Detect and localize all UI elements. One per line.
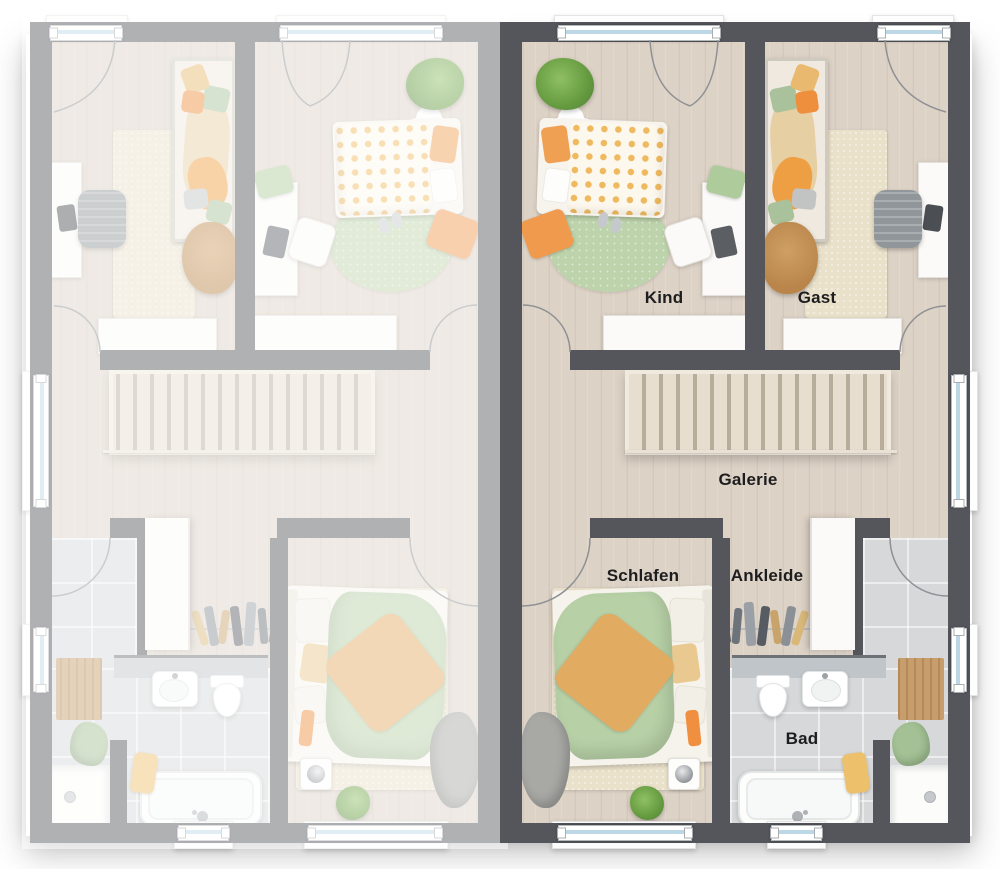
wall-ankleide-bad [137, 538, 147, 672]
door-arc-schlafen [410, 538, 478, 606]
wall-shower [110, 740, 127, 823]
towel-green [892, 722, 930, 766]
pillow-gray [791, 188, 817, 210]
label-schlafen: Schlafen [607, 566, 679, 586]
door-arc-gast-galerie [54, 306, 100, 352]
door-arcs [30, 22, 500, 843]
wall-party [500, 22, 522, 843]
pillow-white [428, 167, 458, 204]
sill-right-bad [22, 624, 40, 696]
garment-5 [770, 610, 783, 645]
toilet-tank [210, 675, 244, 688]
towel-green [70, 722, 108, 766]
window-bad-side [951, 628, 967, 692]
sideboard-gast [98, 318, 217, 354]
pillow-orange-accent [298, 709, 315, 746]
shower-drain [924, 791, 936, 803]
plant-schlafen-icon [336, 786, 370, 820]
toilet [212, 675, 244, 717]
bed-base [280, 585, 448, 767]
bath-counter [114, 655, 268, 678]
bed-base [332, 118, 463, 218]
sill-right-galerie [22, 371, 40, 511]
pillow-green [201, 85, 231, 114]
wall-bottom [30, 823, 500, 843]
chair-kind [286, 215, 338, 269]
wall-galerie-schlafen [590, 518, 723, 538]
sill-bottom-bad [174, 821, 233, 849]
pillow-orange [181, 90, 206, 115]
rug-gast [113, 130, 195, 318]
pillow-gray [183, 188, 209, 210]
desk-gast [918, 162, 950, 278]
wood-floor [52, 42, 478, 823]
window-bad-bottom [178, 825, 229, 841]
sink [152, 671, 198, 707]
desk-kind [250, 182, 298, 296]
window-kind [280, 25, 442, 41]
garment-7 [191, 610, 210, 647]
bed-schlafen [552, 585, 720, 767]
desk-gast [50, 162, 82, 278]
bathtub [140, 771, 262, 827]
garment-2 [731, 608, 742, 645]
pillow-green-2 [205, 198, 234, 225]
window-galerie [951, 375, 967, 507]
mirror-glass [419, 121, 439, 141]
garment-6 [204, 606, 220, 647]
wooden-bath-mat [56, 658, 102, 720]
headboard [280, 589, 298, 757]
laptop [56, 204, 77, 232]
sink-basin [159, 679, 189, 702]
bathroom-tile-floor-a [52, 538, 137, 823]
blanket-gray [430, 712, 480, 808]
shower-drain [64, 791, 76, 803]
duvet-tan [181, 98, 233, 201]
bathroom-tile-floor-b [52, 668, 270, 823]
sill-top-gast [46, 15, 128, 29]
window-bad-side [33, 628, 49, 692]
door-arc-kind-galerie [430, 305, 477, 352]
rug-round-kind [330, 198, 452, 292]
wall-party [478, 22, 500, 843]
speaker-box [300, 758, 332, 790]
plant-kind-icon [406, 58, 464, 110]
garment-2 [257, 608, 268, 645]
bed-schlafen [280, 585, 448, 767]
stair-railing [625, 450, 897, 453]
door-arc-gast [54, 40, 115, 112]
pillow-orange [540, 125, 571, 164]
label-kind: Kind [645, 288, 684, 308]
garment-4 [230, 606, 244, 647]
staircase [109, 370, 375, 455]
wall-galerie-bad [110, 518, 147, 538]
sideboard-gast [783, 318, 902, 354]
duvet-green [324, 591, 448, 761]
bed-gast [765, 58, 828, 242]
wall-rooms-galerie [100, 350, 430, 370]
sill-bottom-schlafen [304, 821, 448, 849]
speaker-sphere [675, 765, 693, 783]
bed-kind [536, 118, 667, 218]
shower [50, 765, 110, 827]
window-bad-bottom [771, 825, 822, 841]
wall-outer-right [30, 22, 52, 843]
garment-5 [218, 610, 231, 645]
laptop [922, 204, 943, 232]
wall-kind-gast [745, 42, 765, 350]
pillow-white-1 [668, 598, 706, 643]
floor-pillow-green [253, 164, 295, 200]
bathtub [738, 771, 860, 827]
pillow-white-2 [292, 685, 328, 726]
throw-orange [184, 154, 232, 213]
desk-monitor [710, 225, 738, 259]
sideboard-kind [250, 315, 397, 354]
pouf-gast [182, 222, 238, 294]
armchair-gast [874, 190, 922, 248]
toilet-bowl [759, 683, 787, 717]
sink-faucet [172, 673, 178, 679]
wall-shower [873, 740, 890, 823]
pillow-white [541, 167, 571, 204]
polka-dot-duvet [334, 121, 433, 216]
label-gast: Gast [798, 288, 837, 308]
bathtub-basin [148, 778, 254, 820]
towel-yellow [129, 752, 158, 795]
flower-mirror [410, 112, 448, 150]
desk-monitor [262, 225, 290, 259]
pillow-tan [299, 642, 334, 684]
floorplan-canvas: Kind Gast Galerie Schlafen Ankleide Bad [0, 0, 1000, 869]
window-gast [50, 25, 122, 41]
pillow-orange [429, 125, 460, 164]
wall-galerie-schlafen [277, 518, 410, 538]
window-kind [558, 25, 720, 41]
slippers [390, 211, 404, 229]
bed-gast [172, 58, 235, 242]
window-galerie [33, 375, 49, 507]
bathtub-faucet [197, 811, 208, 822]
unit-left [30, 22, 500, 843]
speaker-sphere [307, 765, 325, 783]
wardrobe [145, 518, 190, 650]
pillow-tan [179, 63, 210, 96]
shower [890, 765, 950, 827]
garment-3 [743, 602, 756, 647]
throw-tan [321, 608, 450, 737]
wall-galerie-bad [853, 518, 890, 538]
toilet-bowl [213, 683, 241, 717]
rail-bar [190, 628, 284, 630]
stair-railing [103, 450, 375, 453]
staircase [625, 370, 891, 455]
label-bad: Bad [786, 729, 819, 749]
sink-basin [811, 679, 841, 702]
wooden-bath-mat [898, 658, 944, 720]
door-arc-bad [52, 538, 110, 596]
clothes-rail [716, 600, 810, 660]
toilet [756, 675, 788, 717]
sink [802, 671, 848, 707]
wall-schlafen-bad [712, 538, 730, 823]
floor-pillow-orange [425, 207, 482, 260]
wall-top [30, 22, 500, 42]
desk-kind [702, 182, 750, 296]
window-gast [878, 25, 950, 41]
bed-kind [332, 118, 463, 218]
polka-dot-duvet [566, 121, 665, 216]
sideboard-kind [603, 315, 750, 354]
garment-4 [757, 606, 771, 647]
label-galerie: Galerie [718, 470, 777, 490]
label-ankleide: Ankleide [731, 566, 803, 586]
armchair-gast [78, 190, 126, 248]
sill-top-kind [276, 15, 446, 29]
garment-3 [243, 602, 256, 647]
pillow-orange [795, 90, 820, 115]
blanket-gray [520, 712, 570, 808]
plant-kind-icon [536, 58, 594, 110]
wall-rooms-galerie [570, 350, 900, 370]
wall-schlafen-bad [270, 538, 288, 823]
window-schlafen [308, 825, 442, 841]
door-arc-kind-right [282, 40, 310, 106]
floorplan: Kind Gast Galerie Schlafen Ankleide Bad [0, 0, 1000, 869]
sink-faucet [822, 673, 828, 679]
garment-1 [269, 604, 282, 645]
pillow-white-1 [294, 598, 332, 643]
unit-right: Kind Gast Galerie Schlafen Ankleide Bad [500, 22, 970, 843]
speaker-box [668, 758, 700, 790]
door-arc-kind-left [310, 40, 350, 106]
wardrobe [810, 518, 855, 650]
clothes-rail [190, 600, 284, 660]
plant-schlafen-icon [630, 786, 664, 820]
rug-schlafen [296, 588, 448, 790]
wall-kind-gast [235, 42, 255, 350]
window-schlafen [558, 825, 692, 841]
